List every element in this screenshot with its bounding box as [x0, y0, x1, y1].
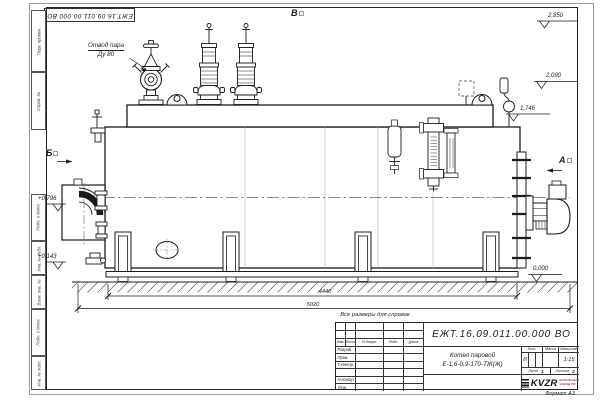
view-arrow-a: [547, 168, 562, 172]
row-tkontr: Т.контр.: [336, 362, 356, 370]
doc-number: ЕЖТ.16.09.011.00.000 ВО: [424, 323, 579, 347]
view-ref-mark: [567, 158, 572, 163]
reference-note: Все размеры для справок: [330, 312, 420, 319]
burner: [526, 181, 570, 234]
sig-cell: [384, 347, 404, 355]
elevation-2850: 2,850: [548, 13, 563, 20]
product-name: Котел паровой Е-1,6-0,9-170-ТЖ(Ж): [424, 347, 522, 376]
elevation-0143: +0,143: [38, 254, 57, 261]
view-label-b: Б: [46, 148, 58, 158]
rev-cell: [346, 331, 356, 339]
repeat-stamp: ЕЖТ.16.09.011.00.000 ВО: [44, 8, 135, 22]
brand-subtitle: КОТЕЛЬНЫЙ ЗАВОД РФ: [559, 379, 579, 387]
col-izm: Изм.: [336, 339, 346, 347]
mass-value: [543, 353, 559, 368]
sig-cell: [356, 369, 384, 377]
rev-cell: [356, 331, 384, 339]
scale-value: 1:15: [559, 353, 579, 368]
sheet-cell: Лист1: [522, 368, 551, 375]
brand-name: KVZR: [531, 378, 558, 389]
sig-cell: [356, 354, 384, 362]
rev-cell: [384, 331, 404, 339]
col-data: Дата: [404, 339, 424, 347]
view-ref-mark: [299, 11, 304, 16]
elevation-0796: +0,796: [38, 196, 57, 203]
dimension-5020: 5020: [258, 302, 368, 308]
rev-cell: [336, 323, 346, 331]
col-podp: Подп.: [384, 339, 404, 347]
row-razrab: Разраб.: [336, 347, 356, 355]
view-label-a: А: [559, 155, 572, 165]
sig-cell: [404, 384, 424, 391]
row-utv: Утв.: [336, 384, 356, 391]
row-empty: [336, 369, 356, 377]
rev-cell: [404, 331, 424, 339]
margin-cell-inv-podl: Инв. № подл.: [31, 356, 46, 390]
drawing-sheet: ЕЖТ.16.09.011.00.000 ВО Перв. примен. Сп…: [0, 0, 600, 400]
sheets-cell: Листов2: [551, 368, 579, 375]
sig-cell: [356, 362, 384, 370]
elevation-2090: 2,090: [546, 73, 561, 80]
view-label-v: В: [291, 8, 304, 18]
rev-cell: [336, 331, 346, 339]
lit-cell-3: [536, 353, 543, 368]
view-ref-mark: [53, 151, 58, 156]
elevation-0000: 0,000: [533, 266, 548, 273]
margin-cell-perv-primen: Перв. примен.: [31, 10, 46, 72]
sig-cell: [356, 384, 384, 391]
kvzr-logo-icon: [522, 379, 529, 388]
dimension-4440: 4440: [270, 289, 380, 295]
sig-cell: [404, 362, 424, 370]
rev-cell: [356, 323, 384, 331]
sig-cell: [384, 377, 404, 385]
rev-cell: [404, 323, 424, 331]
view-arrow-b: [57, 159, 72, 163]
margin-cell-vzam-inv: Взам. инв. №: [31, 275, 46, 309]
lit-cell-2: [529, 353, 536, 368]
sig-cell: [404, 377, 424, 385]
col-list: Лист: [346, 339, 356, 347]
sig-cell: [384, 362, 404, 370]
margin-cell-podp-data-2: Подп. и дата: [31, 309, 46, 356]
title-block: Изм. Лист N докум. Подп. Дата Разраб. Пр…: [335, 322, 578, 390]
rev-cell: [384, 323, 404, 331]
company-cell: KVZR КОТЕЛЬНЫЙ ЗАВОД РФ: [522, 375, 579, 391]
steam-outlet-label: Отвод пара Ду 80: [78, 42, 134, 59]
sig-cell: [404, 369, 424, 377]
col-ndokum: N докум.: [356, 339, 384, 347]
repeat-stamp-number: ЕЖТ.16.09.011.00.000 ВО: [47, 12, 133, 19]
sig-cell: [404, 354, 424, 362]
sig-cell: [384, 354, 404, 362]
rev-cell: [346, 323, 356, 331]
safety-valve-icon: [194, 24, 262, 105]
sig-cell: [384, 384, 404, 391]
name-extra-cell: [424, 375, 522, 391]
sig-cell: [404, 347, 424, 355]
steam-outlet-valve: [133, 41, 170, 105]
row-nkontr: Н.контр.: [336, 377, 356, 385]
format-note: Формат А3: [530, 391, 590, 397]
margin-cell-sprav-no: Справ. №: [31, 72, 46, 130]
lit-value: И: [522, 353, 529, 368]
sig-cell: [384, 369, 404, 377]
sig-cell: [356, 377, 384, 385]
row-prov: Пров.: [336, 354, 356, 362]
sig-cell: [356, 347, 384, 355]
elevation-1746: 1,746: [520, 106, 535, 113]
